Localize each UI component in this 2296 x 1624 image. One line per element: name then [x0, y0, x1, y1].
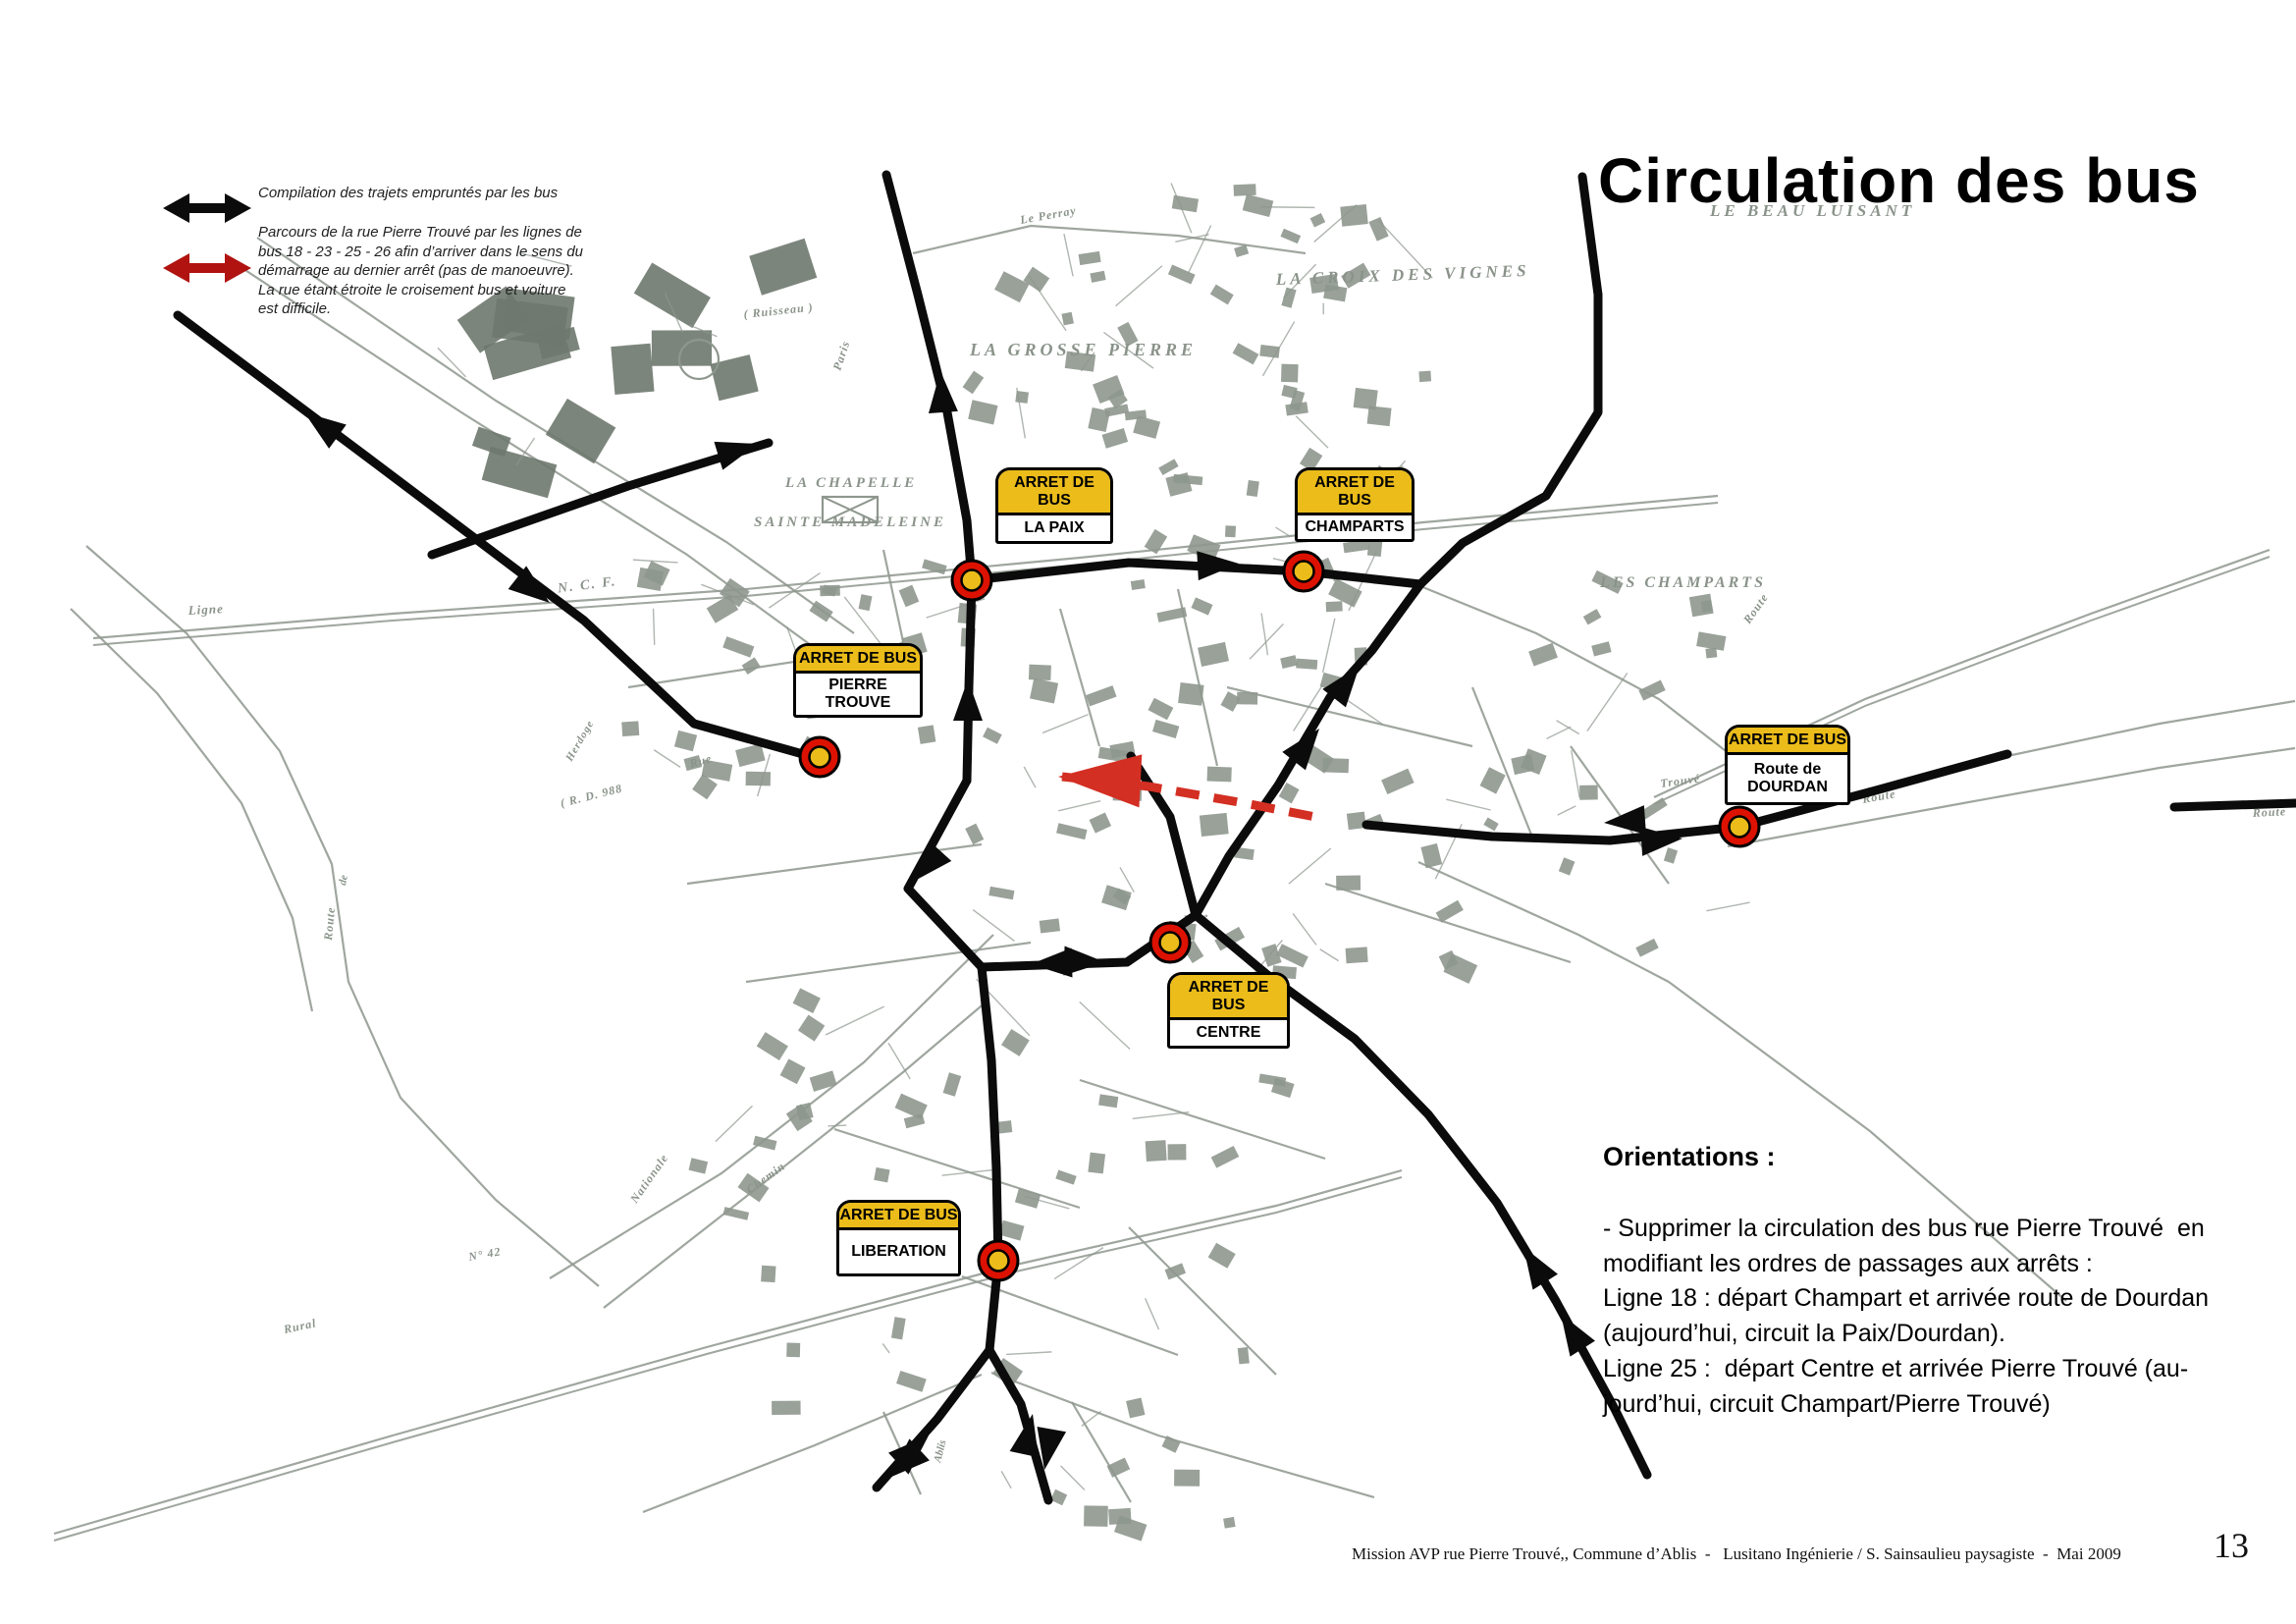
map-label: Le Perray [1018, 203, 1078, 227]
map-label: LA CROIX DES VIGNES [1274, 261, 1529, 289]
bus-stop-label: ARRET DE BUSCENTRE [1167, 972, 1290, 1049]
orientations-heading: Orientations : [1603, 1142, 2251, 1172]
bus-stop-name: LA PAIX [1024, 519, 1084, 537]
bus-stop-header: ARRET DE BUS [1170, 975, 1287, 1020]
bus-stop-name: Route de [1754, 761, 1821, 779]
map-label: Ablis [932, 1438, 949, 1464]
map-label: N° 42 [466, 1244, 502, 1264]
page-number: 13 [2214, 1525, 2249, 1566]
bus-stop-name: DOURDAN [1747, 779, 1828, 796]
map-label: LA CHAPELLE [784, 475, 917, 491]
route-arrowhead [953, 679, 983, 721]
orientations-block: Orientations : - Supprimer la circulatio… [1603, 1142, 2251, 1422]
bus-stop-label: ARRET DE BUSRoute deDOURDAN [1725, 725, 1850, 805]
map-label: Paris [830, 339, 853, 372]
orientations-line: (aujourd’hui, circuit la Paix/Dourdan). [1603, 1317, 2251, 1352]
bus-stop-marker-center [1730, 817, 1750, 838]
bus-stop-name: LIBERATION [851, 1243, 946, 1261]
bus-stop-name: CENTRE [1197, 1024, 1261, 1042]
route-arrowhead [1197, 549, 1240, 580]
bus-route-segment [2174, 803, 2296, 807]
bus-stop-marker-center [988, 1251, 1009, 1272]
legend-item-red-text: Parcours de la rue Pierre Trouvé par les… [258, 223, 588, 319]
document-page: { "page": { "title": "Circulation des bu… [0, 0, 2296, 1624]
red-double-arrow-icon [163, 252, 251, 284]
map-label: ( R. D. 988 [559, 782, 623, 810]
bus-stop-label: ARRET DE BUSLIBERATION [836, 1200, 961, 1276]
bus-stop-marker-center [810, 747, 830, 768]
bus-stop-label: ARRET DE BUSPIERRE TROUVE [793, 643, 923, 718]
map-label: ( Ruisseau ) [743, 300, 814, 321]
map-label: Nationale [626, 1151, 670, 1206]
route-arrowhead [926, 370, 958, 413]
map-symbols [679, 340, 878, 522]
legend-item-black-text: Compilation des trajets empruntés par le… [258, 185, 592, 201]
map-label: de [337, 874, 350, 886]
orientations-line: jourd’hui, circuit Champart/Pierre Trouv… [1603, 1387, 2251, 1423]
map-label: Rural [282, 1316, 318, 1336]
bus-stop-header: ARRET DE BUS [796, 646, 920, 674]
bus-stop-marker-center [1160, 933, 1181, 953]
bus-stop-label: ARRET DE BUSLA PAIX [995, 467, 1113, 544]
page-title: Circulation des bus [1598, 144, 2200, 217]
route-arrowhead [1064, 947, 1106, 977]
red-route-arrowhead [1057, 750, 1143, 807]
bus-route-segment [982, 967, 998, 1350]
black-double-arrow-icon [163, 192, 251, 224]
bus-route-segment [1366, 754, 2007, 840]
bus-stop-header: ARRET DE BUS [839, 1203, 958, 1230]
orientations-line: Ligne 18 : départ Champart et arrivée ro… [1603, 1281, 2251, 1317]
bus-stop-marker-center [1294, 562, 1314, 582]
bus-route-segment [877, 1350, 989, 1488]
orientations-line: modifiant les ordres de passages aux arr… [1603, 1247, 2251, 1282]
red-double-arrow-shape [163, 253, 251, 283]
bus-stop-header: ARRET DE BUS [998, 470, 1110, 515]
map-label: SAINTE MADELEINE [754, 514, 946, 530]
bus-stop-header: ARRET DE BUS [1728, 728, 1847, 755]
footer-credit: Mission AVP rue Pierre Trouvé,, Commune … [1352, 1544, 2121, 1564]
map-label: LES CHAMPARTS [1599, 574, 1766, 591]
bus-stop-label: ARRET DE BUSCHAMPARTS [1295, 467, 1415, 542]
route-arrowhead [1548, 1306, 1595, 1357]
orientations-line: - Supprimer la circulation des bus rue P… [1603, 1212, 2251, 1247]
route-arrowhead [1511, 1239, 1558, 1290]
orientations-line: Ligne 25 : départ Centre et arrivée Pier… [1603, 1352, 2251, 1387]
bus-stop-marker-center [962, 570, 983, 591]
bus-route-segment [1420, 177, 1598, 584]
bus-stop-name: PIERRE TROUVE [796, 677, 920, 712]
map-label: LA GROSSE PIERRE [969, 340, 1197, 359]
map-label: Trouvé [1659, 771, 1700, 790]
bus-stop-name: CHAMPARTS [1305, 518, 1404, 536]
bus-stop-header: ARRET DE BUS [1298, 470, 1412, 515]
map-label: Route [1739, 591, 1771, 627]
black-double-arrow-shape [163, 193, 251, 223]
map-label: Ligne [187, 601, 224, 618]
building-blocks [438, 184, 1750, 1542]
map-label: Route [321, 906, 338, 942]
route-arrowhead [1603, 805, 1646, 838]
map-label: Herdoge [563, 719, 597, 765]
bus-route-segment [972, 563, 1420, 584]
